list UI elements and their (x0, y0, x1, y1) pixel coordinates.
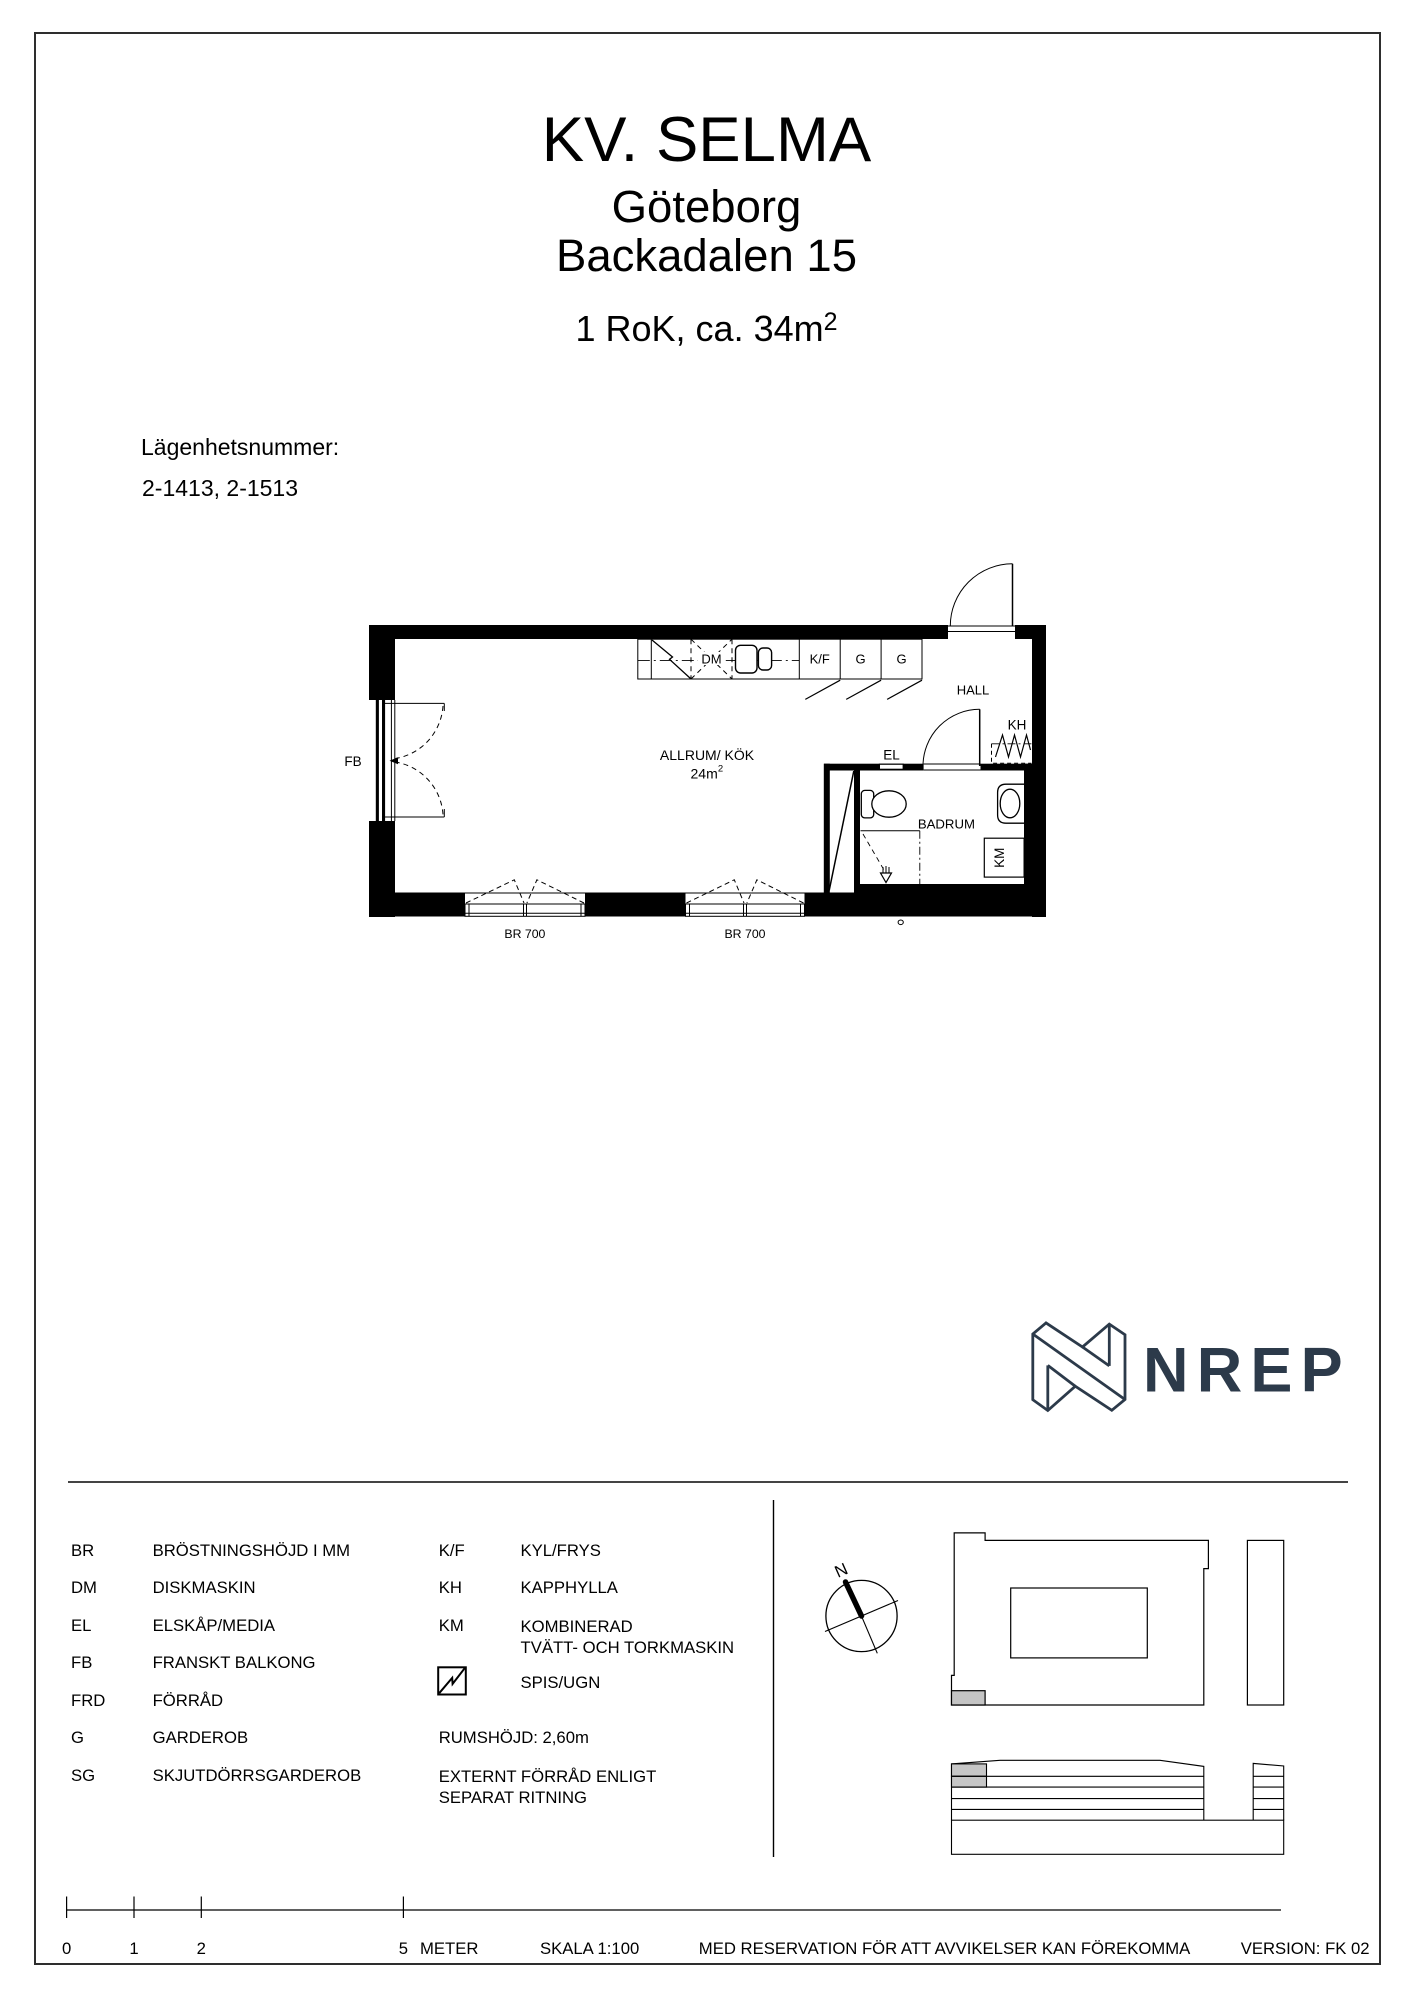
svg-text:NREP: NREP (1143, 1336, 1351, 1406)
svg-text:G: G (896, 651, 906, 666)
svg-text:BADRUM: BADRUM (918, 816, 975, 831)
svg-text:24m: 24m (691, 765, 718, 781)
svg-text:KH: KH (1008, 718, 1027, 733)
svg-text:BR 700: BR 700 (504, 927, 545, 941)
svg-text:N: N (832, 1559, 851, 1581)
svg-text:2: 2 (718, 764, 723, 775)
svg-text:HALL: HALL (957, 683, 990, 698)
svg-text:G: G (856, 651, 866, 666)
svg-text:K/F: K/F (810, 651, 830, 666)
svg-text:ALLRUM/ KÖK: ALLRUM/ KÖK (660, 746, 755, 763)
svg-text:DM: DM (701, 651, 721, 666)
svg-text:BR 700: BR 700 (724, 927, 765, 941)
svg-text:EL: EL (883, 747, 900, 762)
svg-text:KM: KM (992, 848, 1007, 868)
svg-text:FB: FB (344, 754, 361, 769)
